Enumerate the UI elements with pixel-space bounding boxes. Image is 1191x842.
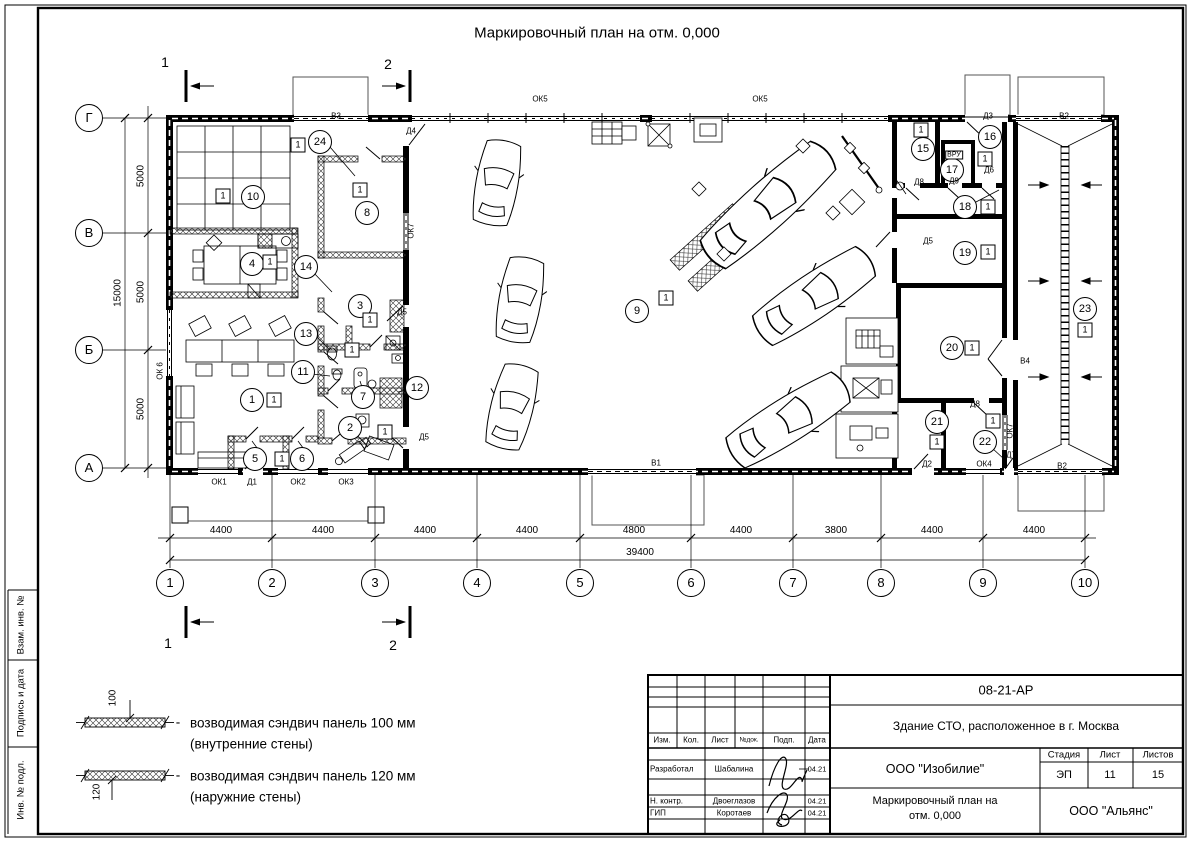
plan-label-ОК7: ОК7: [407, 223, 416, 238]
axis-bubble-6: 6: [677, 569, 705, 597]
wall-type-mark: 1: [216, 189, 231, 204]
section-mark-number: 1: [164, 635, 172, 651]
drawing-title: Маркировочный план на отм. 0,000: [474, 25, 720, 42]
plan-label-Д4: Д4: [406, 127, 416, 136]
plan-label-ОК5: ОК5: [532, 95, 547, 104]
room-number-6: 6: [290, 447, 314, 471]
room-number-10: 10: [241, 185, 265, 209]
dimension-label: 5000: [136, 398, 147, 420]
object-name: Здание СТО, расположенное в г. Москва: [893, 719, 1119, 733]
room-number-15: 15: [911, 137, 935, 161]
wall-type-mark: 1: [378, 425, 393, 440]
room-number-16: 16: [978, 125, 1002, 149]
plan-label-Д5: Д5: [923, 237, 933, 246]
dimension-total: 15000: [113, 279, 124, 307]
legend-dimension: 100: [108, 690, 119, 707]
plan-label-ОК5: ОК5: [752, 95, 767, 104]
stamp-side-label: Взам. инв. №: [16, 596, 27, 655]
section-mark-number: 2: [389, 637, 397, 653]
tb-date: 04.21: [808, 765, 827, 774]
room-number-5: 5: [243, 447, 267, 471]
drawing-sheet: Маркировочный план на отм. 0,000 Взам. и…: [0, 0, 1191, 842]
dimension-label: 4400: [730, 525, 752, 536]
tb-col-data: Дата: [808, 736, 826, 745]
room-number-1: 1: [240, 388, 264, 412]
section-mark-number: 1: [161, 54, 169, 70]
wall-type-mark: 1: [267, 393, 282, 408]
axis-bubble-9: 9: [969, 569, 997, 597]
plan-label-В2: В2: [1059, 112, 1069, 121]
dimension-label: 5000: [136, 281, 147, 303]
wall-type-mark: 1: [659, 291, 674, 306]
room-number-9: 9: [625, 299, 649, 323]
dimension-label: 3800: [825, 525, 847, 536]
stamp-side-label: Подпись и дата: [16, 669, 27, 737]
room-number-8: 8: [355, 201, 379, 225]
org-name: ООО "Изобилие": [886, 762, 984, 776]
tb-name: Коротаев: [717, 809, 752, 818]
contractor-name: ООО "Альянс": [1069, 804, 1153, 818]
plan-label-В1: В1: [651, 459, 661, 468]
room-number-19: 19: [953, 241, 977, 265]
plan-label-ОК1: ОК1: [211, 478, 226, 487]
plan-label-ОК2: ОК2: [290, 478, 305, 487]
room-number-22: 22: [973, 430, 997, 454]
axis-bubble-Г: Г: [75, 104, 103, 132]
dimension-label: 5000: [136, 165, 147, 187]
drawing-name-line2: отм. 0,000: [909, 810, 961, 822]
wall-type-mark: 1: [981, 200, 996, 215]
room-number-23: 23: [1073, 297, 1097, 321]
plan-label-ОК3: ОК3: [338, 478, 353, 487]
doc-code: 08-21-АР: [979, 683, 1034, 698]
drawing-name-line1: Маркировочный план на: [872, 795, 997, 807]
sheets-header: Листов: [1143, 750, 1174, 761]
stage-header: Стадия: [1048, 750, 1080, 761]
plan-label-Д2: Д2: [922, 460, 932, 469]
dimension-label: 4400: [414, 525, 436, 536]
tb-col-izm: Изм.: [653, 736, 670, 745]
tb-role: Н. контр.: [650, 797, 683, 806]
dimension-label: 4800: [623, 525, 645, 536]
tb-name: Шабалина: [715, 765, 754, 774]
stage-value: ЭП: [1056, 769, 1072, 781]
plan-label-Д9: Д9: [949, 177, 959, 186]
wall-type-mark: 1: [275, 452, 290, 467]
plan-label-ОК7: ОК7: [1006, 423, 1015, 438]
annotation-layer: Маркировочный план на отм. 0,000 Взам. и…: [0, 0, 1191, 842]
tb-col-ndok: №док.: [739, 737, 758, 744]
axis-bubble-2: 2: [258, 569, 286, 597]
legend-item-text: возводимая сэндвич панель 120 мм: [190, 769, 416, 784]
plan-label-Д8: Д8: [914, 178, 924, 187]
room-number-7: 7: [351, 385, 375, 409]
plan-label-ВРУ: ВРУ: [945, 151, 963, 160]
wall-type-mark: 1: [930, 435, 945, 450]
room-number-2: 2: [338, 416, 362, 440]
legend-dimension: 120: [92, 784, 103, 801]
sheet-value: 11: [1104, 769, 1115, 781]
wall-type-mark: 1: [965, 341, 980, 356]
axis-bubble-10: 10: [1071, 569, 1099, 597]
axis-bubble-8: 8: [867, 569, 895, 597]
tb-date: 04.21: [808, 809, 827, 818]
room-number-4: 4: [240, 252, 264, 276]
tb-date: 04.21: [808, 797, 827, 806]
wall-type-mark: 1: [978, 152, 993, 167]
axis-bubble-5: 5: [566, 569, 594, 597]
axis-bubble-А: А: [75, 454, 103, 482]
room-number-11: 11: [291, 360, 315, 384]
axis-bubble-3: 3: [361, 569, 389, 597]
dimension-label: 4400: [312, 525, 334, 536]
tb-role: Разработал: [650, 765, 694, 774]
room-number-13: 13: [294, 322, 318, 346]
axis-bubble-4: 4: [463, 569, 491, 597]
plan-label-ОК 6: ОК 6: [156, 362, 165, 380]
legend-dash: -: [176, 768, 181, 783]
sheet-header: Лист: [1100, 750, 1121, 761]
plan-label-В4: В4: [1020, 357, 1030, 366]
axis-bubble-В: В: [75, 219, 103, 247]
plan-label-В3: В3: [331, 112, 341, 121]
plan-label-Д5: Д5: [419, 433, 429, 442]
wall-type-mark: 1: [981, 245, 996, 260]
axis-bubble-1: 1: [156, 569, 184, 597]
room-number-20: 20: [940, 336, 964, 360]
sheets-value: 15: [1152, 769, 1164, 781]
dimension-label: 4400: [210, 525, 232, 536]
tb-col-podp: Подп.: [773, 736, 794, 745]
axis-bubble-7: 7: [779, 569, 807, 597]
stamp-side-label: Инв. № подл.: [16, 760, 27, 819]
plan-label-Д8: Д8: [970, 400, 980, 409]
dimension-label: 4400: [1023, 525, 1045, 536]
legend-item-note: (наружние стены): [190, 790, 301, 805]
room-number-14: 14: [294, 255, 318, 279]
section-mark-number: 2: [384, 56, 392, 72]
legend-item-note: (внутренние стены): [190, 737, 313, 752]
tb-col-kol: Кол.: [683, 736, 699, 745]
wall-type-mark: 1: [986, 414, 1001, 429]
wall-type-mark: 1: [291, 138, 306, 153]
plan-label-Д3: Д3: [983, 112, 993, 121]
legend-dash: -: [176, 715, 181, 730]
plan-label-Д1: Д1: [247, 478, 257, 487]
wall-type-mark: 1: [914, 123, 929, 138]
plan-label-Д5: Д5: [397, 308, 407, 317]
plan-label-ОК4: ОК4: [976, 460, 991, 469]
room-number-12: 12: [405, 376, 429, 400]
plan-label-В2: В2: [1057, 462, 1067, 471]
axis-bubble-Б: Б: [75, 336, 103, 364]
tb-col-list: Лист: [711, 736, 728, 745]
tb-name: Двоеглазов: [713, 797, 756, 806]
wall-type-mark: 1: [353, 183, 368, 198]
legend-item-text: возводимая сэндвич панель 100 мм: [190, 716, 416, 731]
wall-type-mark: 1: [263, 255, 278, 270]
dimension-label: 4400: [921, 525, 943, 536]
wall-type-mark: 1: [363, 313, 378, 328]
wall-type-mark: 1: [345, 343, 360, 358]
room-number-18: 18: [953, 195, 977, 219]
dimension-total: 39400: [626, 547, 654, 558]
tb-role: ГИП: [650, 809, 666, 818]
room-number-21: 21: [925, 410, 949, 434]
dimension-label: 4400: [516, 525, 538, 536]
plan-label-Д6: Д6: [984, 166, 994, 175]
wall-type-mark: 1: [1078, 323, 1093, 338]
plan-label-Д7: Д7: [1006, 451, 1016, 460]
room-number-24: 24: [308, 130, 332, 154]
